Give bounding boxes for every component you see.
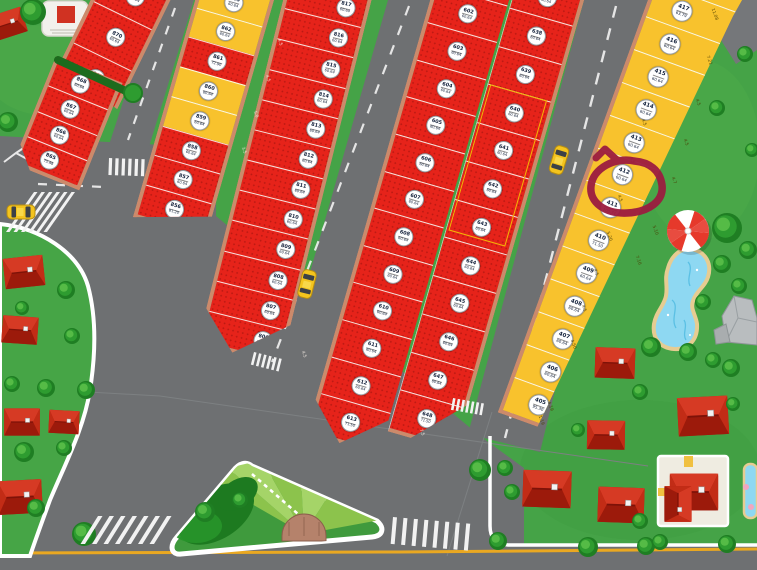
hedge: [58, 60, 142, 102]
map-overlay: [0, 0, 757, 570]
taxi-icon: [7, 205, 35, 219]
crosswalk: [451, 398, 484, 415]
crosswalk: [81, 516, 172, 544]
crosswalks: [6, 158, 484, 551]
crosswalk: [108, 158, 144, 176]
umbrella-icon: [667, 210, 712, 255]
crosswalk: [251, 352, 282, 372]
plot-map: 87160.6487060.6486972.90 86860.6486760.6…: [0, 0, 757, 570]
crosswalk: [391, 517, 471, 551]
taxi-icon: [297, 269, 317, 300]
highlight-marker-icon: [591, 149, 662, 213]
taxi-icon: [548, 145, 570, 176]
